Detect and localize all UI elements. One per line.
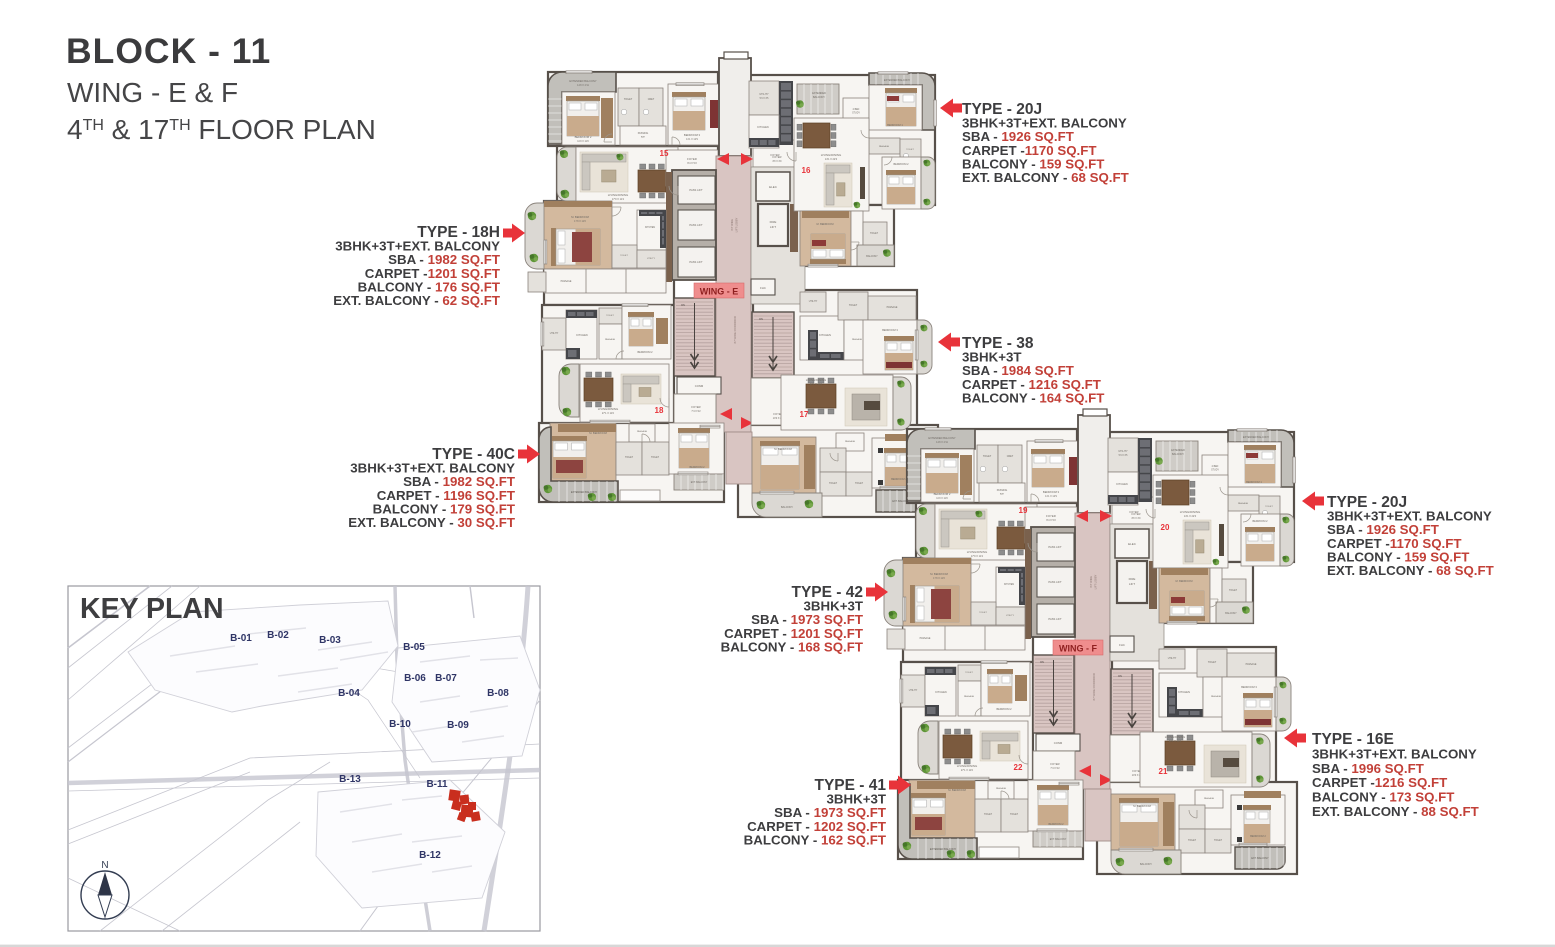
svg-text:FOYER: FOYER	[1046, 514, 1056, 518]
svg-text:UTILITY: UTILITY	[909, 690, 918, 692]
svg-text:B-12: B-12	[419, 850, 441, 861]
svg-text:11'0 X 11'0: 11'0 X 11'0	[936, 497, 948, 500]
svg-text:TOILET: TOILET	[906, 149, 914, 151]
svg-text:17'9 X 11'2: 17'9 X 11'2	[971, 555, 984, 558]
svg-text:UTILITY: UTILITY	[759, 93, 769, 96]
svg-text:M. BEDROOM: M. BEDROOM	[930, 572, 948, 576]
svg-text:LIFT: LIFT	[770, 225, 776, 229]
svg-text:11'1 X 12'9: 11'1 X 12'9	[686, 138, 698, 141]
svg-text:PASSAGE: PASSAGE	[1211, 695, 1222, 698]
svg-text:4'7 WIDE CORRIDOR: 4'7 WIDE CORRIDOR	[733, 316, 737, 344]
svg-text:KITCHEN: KITCHEN	[1116, 482, 1128, 486]
svg-text:M. BEDROOM: M. BEDROOM	[571, 215, 589, 219]
svg-text:BALCONY: BALCONY	[1225, 612, 1237, 615]
svg-text:UTILITY: UTILITY	[1118, 450, 1128, 453]
svg-text:EXT. BALCONY - 62 SQ.FT: EXT. BALCONY - 62 SQ.FT	[333, 293, 500, 308]
svg-text:TOILET: TOILET	[651, 457, 660, 459]
svg-text:BEDROOM 2: BEDROOM 2	[1250, 834, 1266, 838]
svg-text:B-04: B-04	[338, 688, 360, 699]
svg-text:11'1 X 12'9: 11'1 X 12'9	[1045, 495, 1057, 498]
svg-text:KITCHEN: KITCHEN	[819, 333, 831, 337]
svg-text:EXT. BALCONY - 30 SQ.FT: EXT. BALCONY - 30 SQ.FT	[348, 515, 515, 530]
svg-text:FHC: FHC	[760, 286, 766, 290]
svg-text:FOYER: FOYER	[1050, 762, 1059, 766]
svg-text:DN: DN	[1118, 675, 1122, 678]
svg-text:BALCONY: BALCONY	[1140, 863, 1152, 866]
svg-text:BALCONY: BALCONY	[813, 96, 825, 99]
svg-text:TOILET: TOILET	[984, 814, 993, 816]
svg-text:ELEC: ELEC	[1128, 542, 1137, 546]
svg-text:BEDROOM 3: BEDROOM 3	[684, 133, 701, 137]
svg-text:BEDROOM 2: BEDROOM 2	[689, 466, 705, 469]
svg-text:LIFT LOBBY: LIFT LOBBY	[1094, 574, 1098, 589]
svg-text:SBA - 1996 SQ.FT: SBA - 1996 SQ.FT	[1312, 761, 1424, 776]
svg-text:KITCHEN: KITCHEN	[1004, 584, 1014, 586]
svg-text:19: 19	[1019, 506, 1028, 515]
svg-text:22: 22	[1014, 763, 1023, 772]
svg-text:UTILITY: UTILITY	[1168, 658, 1177, 660]
svg-text:PASSAGE: PASSAGE	[887, 306, 898, 309]
svg-text:LIVING/DINING: LIVING/DINING	[1165, 735, 1186, 739]
svg-text:BEDROOM 2: BEDROOM 2	[891, 477, 907, 481]
svg-text:17: 17	[800, 410, 809, 419]
svg-text:TOILET: TOILET	[1010, 814, 1019, 816]
svg-text:4'7 WIDE CORRIDOR: 4'7 WIDE CORRIDOR	[1092, 673, 1096, 701]
svg-text:M. BEDROOM: M. BEDROOM	[1133, 804, 1151, 808]
svg-text:UTILITY: UTILITY	[809, 301, 818, 303]
svg-text:TOILET: TOILET	[606, 315, 614, 317]
svg-text:CRET: CRET	[1007, 455, 1014, 458]
svg-text:LIVING/DINING: LIVING/DINING	[957, 764, 978, 768]
svg-text:BALCONY: BALCONY	[1172, 453, 1184, 456]
svg-text:B-09: B-09	[447, 720, 469, 731]
svg-text:22'1 X 11'0: 22'1 X 11'0	[1169, 740, 1182, 743]
svg-text:7FT WIDE: 7FT WIDE	[1089, 576, 1093, 588]
svg-text:BEDROOM 3: BEDROOM 3	[1043, 490, 1060, 494]
svg-text:FOYER: FOYER	[691, 405, 700, 409]
svg-text:PASSAGE: PASSAGE	[879, 145, 890, 148]
svg-text:TOILET: TOILET	[829, 483, 838, 485]
svg-text:B-08: B-08	[487, 688, 509, 699]
svg-text:EXTENDED BALCONY: EXTENDED BALCONY	[569, 79, 597, 83]
svg-text:14'1 X 22'0: 14'1 X 22'0	[825, 158, 838, 161]
svg-text:3BHK+3T+EXT. BALCONY: 3BHK+3T+EXT. BALCONY	[1312, 746, 1477, 761]
svg-text:TOILET: TOILET	[965, 672, 973, 674]
svg-text:PASS LIFT: PASS LIFT	[1048, 545, 1062, 549]
svg-text:B-05: B-05	[403, 642, 425, 653]
svg-text:WING - F: WING - F	[1059, 644, 1097, 654]
svg-text:DN: DN	[1040, 661, 1044, 664]
svg-text:2 BED: 2 BED	[853, 109, 860, 111]
svg-text:PASSAGE: PASSAGE	[637, 430, 648, 433]
svg-text:20: 20	[1161, 523, 1170, 532]
svg-text:KITCHEN: KITCHEN	[576, 333, 588, 337]
svg-text:EXTENDED: EXTENDED	[1171, 449, 1185, 452]
svg-text:EXTENDED BALCONY: EXTENDED BALCONY	[928, 436, 956, 440]
svg-text:PASSING: PASSING	[997, 489, 1008, 492]
svg-text:BALCONY - 162 SQ.FT: BALCONY - 162 SQ.FT	[744, 832, 886, 847]
svg-text:FOYER: FOYER	[1132, 512, 1141, 516]
svg-text:WING - E: WING - E	[700, 287, 739, 297]
svg-text:BAY: BAY	[1000, 493, 1005, 496]
svg-text:BEDROOM 3: BEDROOM 3	[882, 328, 898, 332]
svg-text:BAY: BAY	[641, 136, 646, 139]
svg-text:B-07: B-07	[435, 673, 457, 684]
svg-text:UTILITY: UTILITY	[1006, 615, 1015, 617]
svg-text:ELEC: ELEC	[769, 185, 778, 189]
svg-text:KITCHEN: KITCHEN	[757, 125, 769, 129]
svg-text:M. BEDROOM: M. BEDROOM	[948, 788, 966, 792]
svg-text:TOILET: TOILET	[624, 98, 633, 101]
svg-text:5'4 X 4'5: 5'4 X 4'5	[760, 98, 770, 100]
svg-text:BALCONY: BALCONY	[781, 506, 793, 509]
svg-text:BALCONY - 168 SQ.FT: BALCONY - 168 SQ.FT	[721, 639, 863, 654]
svg-text:11'0 X 11'0: 11'0 X 11'0	[577, 140, 589, 143]
svg-text:B-06: B-06	[404, 673, 426, 684]
svg-text:BEDROOM 2: BEDROOM 2	[934, 492, 951, 496]
svg-text:BEDROOM 2: BEDROOM 2	[575, 135, 592, 139]
svg-text:EXTENDED BALCONY: EXTENDED BALCONY	[884, 79, 911, 82]
svg-text:2 BED: 2 BED	[1212, 466, 1219, 468]
svg-text:TOILET: TOILET	[1188, 840, 1197, 842]
svg-text:14'0 X 4'11: 14'0 X 4'11	[577, 84, 589, 87]
svg-text:BEDROOM 1: BEDROOM 1	[887, 123, 903, 127]
svg-text:8'0 X 4'9: 8'0 X 4'9	[1132, 518, 1142, 520]
svg-text:DN: DN	[759, 318, 763, 321]
svg-text:BALCONY - 173 SQ.FT: BALCONY - 173 SQ.FT	[1312, 790, 1454, 805]
svg-text:15: 15	[660, 149, 669, 158]
svg-text:B-01: B-01	[230, 633, 252, 644]
svg-text:BEDROOM 2: BEDROOM 2	[1252, 520, 1268, 523]
svg-text:B-13: B-13	[339, 774, 361, 785]
svg-text:FOYER: FOYER	[687, 157, 697, 161]
svg-text:BEDROOM 3: BEDROOM 3	[1241, 685, 1257, 689]
svg-text:WING - E & F: WING - E & F	[67, 77, 238, 108]
svg-text:KITCHEN: KITCHEN	[1178, 690, 1190, 694]
svg-text:PASSAGE: PASSAGE	[852, 338, 863, 341]
svg-text:PASS LIFT: PASS LIFT	[689, 223, 703, 227]
svg-text:PASSAGE: PASSAGE	[561, 280, 572, 283]
svg-text:KITCHEN: KITCHEN	[935, 690, 947, 694]
svg-text:LIVING/DINING: LIVING/DINING	[967, 550, 988, 554]
svg-text:9'4 X 5'2: 9'4 X 5'2	[1046, 519, 1056, 522]
svg-text:PASSAGE: PASSAGE	[996, 787, 1007, 790]
svg-text:M. BEDROOM: M. BEDROOM	[589, 431, 607, 435]
svg-text:LIFT: LIFT	[1129, 582, 1135, 586]
svg-text:B-11: B-11	[426, 779, 448, 790]
svg-text:STUDY: STUDY	[1211, 470, 1219, 472]
svg-text:EXT. BALCONY: EXT. BALCONY	[1251, 857, 1269, 860]
svg-text:BEDROOM 2: BEDROOM 2	[996, 708, 1012, 711]
svg-text:27'1 X 11'0: 27'1 X 11'0	[961, 769, 974, 772]
svg-text:BALCONY: BALCONY	[866, 255, 878, 258]
svg-text:PASS LIFT: PASS LIFT	[1048, 580, 1062, 584]
svg-text:TOILET: TOILET	[1208, 661, 1217, 664]
svg-text:TOILET: TOILET	[849, 304, 858, 307]
svg-text:N: N	[101, 860, 108, 871]
svg-text:LIVING/DINING: LIVING/DINING	[806, 378, 827, 382]
svg-text:7FT WIDE: 7FT WIDE	[730, 219, 734, 231]
svg-text:BEDROOM 2: BEDROOM 2	[637, 351, 653, 354]
svg-text:BEDROOM 1: BEDROOM 1	[1246, 480, 1262, 484]
svg-text:KEY PLAN: KEY PLAN	[80, 593, 224, 625]
svg-text:LIFT LOBBY: LIFT LOBBY	[735, 217, 739, 232]
svg-text:8'0 X 4'9: 8'0 X 4'9	[773, 161, 783, 163]
svg-text:5'4 X 4'5: 5'4 X 4'5	[1119, 455, 1129, 457]
svg-text:CARPET -1216 SQ.FT: CARPET -1216 SQ.FT	[1312, 775, 1447, 790]
svg-text:TOILET: TOILET	[1229, 590, 1238, 592]
svg-text:BEDROOM 2: BEDROOM 2	[1048, 823, 1064, 826]
svg-text:TOILET: TOILET	[983, 455, 992, 458]
svg-text:FOYER: FOYER	[773, 155, 782, 159]
svg-text:TOILET: TOILET	[979, 612, 987, 614]
svg-text:9'4 X 5'2: 9'4 X 5'2	[687, 162, 697, 165]
svg-text:14'0 X 4'11: 14'0 X 4'11	[936, 441, 948, 444]
svg-text:B-03: B-03	[319, 635, 341, 646]
svg-text:PASSAGE: PASSAGE	[1246, 663, 1257, 666]
svg-text:CONM: CONM	[1054, 741, 1063, 745]
svg-text:DN: DN	[681, 304, 685, 307]
svg-text:LIVING/DINING: LIVING/DINING	[821, 153, 842, 157]
svg-text:STUDY: STUDY	[852, 113, 860, 115]
svg-text:16: 16	[802, 166, 811, 175]
svg-text:KITCHEN: KITCHEN	[645, 227, 655, 229]
svg-text:M. BEDROOM: M. BEDROOM	[1175, 579, 1192, 583]
svg-text:22'1 X 11'0: 22'1 X 11'0	[810, 383, 823, 386]
svg-text:M. BEDROOM: M. BEDROOM	[774, 447, 792, 451]
svg-text:B-02: B-02	[267, 630, 289, 641]
svg-text:LIVING/DINING: LIVING/DINING	[598, 407, 619, 411]
svg-text:TOILET: TOILET	[1265, 506, 1273, 508]
svg-text:EXT. BALCONY: EXT. BALCONY	[691, 481, 708, 484]
svg-text:PASSAGE: PASSAGE	[1204, 797, 1215, 800]
svg-text:PASSAGE: PASSAGE	[1238, 502, 1249, 505]
svg-text:14'1 X 22'0: 14'1 X 22'0	[1184, 515, 1197, 518]
svg-text:17'0 X 11'0: 17'0 X 11'0	[574, 220, 586, 223]
svg-text:EXT. BALCONY: EXT. BALCONY	[1050, 838, 1067, 841]
svg-text:PASSAGE: PASSAGE	[845, 440, 856, 443]
svg-text:TOILET: TOILET	[1214, 840, 1223, 842]
svg-text:EXT. BALCONY - 68 SQ.FT: EXT. BALCONY - 68 SQ.FT	[962, 170, 1129, 185]
svg-text:CONM: CONM	[695, 384, 704, 388]
svg-text:17'9 X 11'2: 17'9 X 11'2	[612, 198, 625, 201]
svg-text:EXT. BALCONY - 88 SQ.FT: EXT. BALCONY - 88 SQ.FT	[1312, 804, 1479, 819]
svg-text:21: 21	[1159, 767, 1168, 776]
svg-text:18: 18	[655, 406, 664, 415]
svg-text:BLOCK - 11: BLOCK - 11	[66, 31, 271, 71]
svg-text:7'4 X 9'2: 7'4 X 9'2	[691, 410, 701, 413]
svg-text:PASS LIFT: PASS LIFT	[1048, 617, 1062, 621]
svg-text:4TH & 17TH FLOOR PLAN: 4TH & 17TH FLOOR PLAN	[67, 114, 376, 145]
svg-text:EXT. BALCONY - 68 SQ.FT: EXT. BALCONY - 68 SQ.FT	[1327, 563, 1494, 578]
svg-text:PASSING: PASSING	[638, 132, 649, 135]
svg-text:TOILET: TOILET	[620, 255, 628, 257]
svg-text:FIRE: FIRE	[770, 220, 777, 224]
svg-text:LIVING/DINING: LIVING/DINING	[608, 193, 629, 197]
svg-text:TOILET: TOILET	[870, 233, 879, 235]
svg-text:PASS LIFT: PASS LIFT	[689, 260, 703, 264]
svg-text:LIVING/DINING: LIVING/DINING	[1180, 510, 1201, 514]
svg-text:27'1 X 11'0: 27'1 X 11'0	[602, 412, 615, 415]
svg-text:17'0 X 11'0: 17'0 X 11'0	[933, 577, 945, 580]
svg-text:PASS LIFT: PASS LIFT	[689, 188, 703, 192]
svg-text:FHC: FHC	[1119, 643, 1125, 647]
svg-text:EXTENDED BALCONY: EXTENDED BALCONY	[1243, 436, 1270, 439]
svg-text:EXTENDED: EXTENDED	[812, 92, 826, 95]
svg-text:TOILET: TOILET	[625, 457, 634, 459]
svg-text:PASSAGE: PASSAGE	[964, 695, 975, 698]
svg-text:UTILITY: UTILITY	[550, 333, 559, 335]
svg-text:TOILET: TOILET	[855, 483, 864, 485]
svg-text:BEDROOM 2: BEDROOM 2	[893, 163, 909, 166]
svg-text:7'4 X 9'2: 7'4 X 9'2	[1050, 767, 1060, 770]
svg-text:PASSAGE: PASSAGE	[920, 637, 931, 640]
svg-text:UTILITY: UTILITY	[647, 258, 656, 260]
svg-text:B-10: B-10	[389, 719, 411, 730]
svg-text:BALCONY - 164 SQ.FT: BALCONY - 164 SQ.FT	[962, 390, 1104, 405]
svg-text:PASSAGE: PASSAGE	[605, 338, 616, 341]
svg-text:FIRE: FIRE	[1129, 577, 1136, 581]
svg-text:CRET: CRET	[648, 98, 655, 101]
svg-text:M. BEDROOM: M. BEDROOM	[816, 222, 833, 226]
